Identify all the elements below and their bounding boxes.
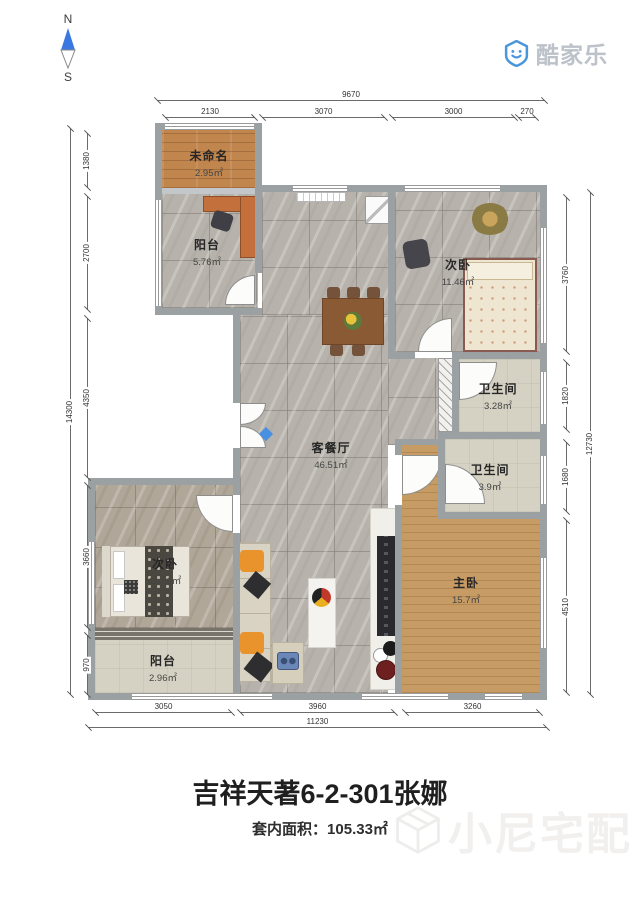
wall [438,432,547,439]
window [132,693,272,700]
dim-right-total: 12730 [590,192,591,695]
radiator [296,192,346,202]
window [540,558,547,648]
window [485,693,522,700]
bed-blanket [124,580,138,594]
wall [155,308,262,315]
dim-top-seg: 270 [518,117,536,118]
window [540,228,547,343]
armchair [402,238,431,270]
dim-top-seg: 3000 [392,117,515,118]
plan-area-total: 套内面积：105.33㎡ [0,818,640,839]
dining-chair [330,344,343,356]
room-label-balcony-top: 阳台5.76㎡ [193,236,221,268]
dim-left-seg: 4350 [87,318,88,478]
wall [438,439,445,519]
sofa-pillow-orange [240,550,264,572]
fruit-bowl-icon [312,588,331,607]
room-label-living-dining: 客餐厅46.51㎡ [311,439,350,471]
wall [233,478,240,495]
dim-top-seg: 2130 [165,117,255,118]
table-plant-icon [344,312,362,330]
dim-right-seg: 4510 [566,520,567,693]
wall [388,192,395,358]
wall [452,359,459,439]
dim-top-total: 9670 [157,100,545,101]
dim-left-seg: 970 [87,635,88,695]
pot-red [376,660,396,680]
wall-partition [162,188,258,194]
wall [395,445,402,455]
stereo [277,652,299,670]
dim-bottom-total: 11230 [88,727,547,728]
bed-pillows [467,262,533,280]
plant-icon [470,203,510,235]
window [540,456,547,504]
dim-top-seg: 3070 [262,117,385,118]
room-label-bedroom-right: 次卧11.46㎡ [442,256,475,288]
sliding-door-track [95,628,233,640]
compass-north-label: N [50,12,86,26]
room-label-balcony-bottom: 阳台2.96㎡ [149,652,177,684]
plan-title: 吉祥天著6-2-301张娜 [0,772,640,811]
wall [438,512,547,519]
compass: N S [50,12,86,84]
compass-arrow-icon [57,26,79,70]
wall [255,123,262,273]
window [362,693,448,700]
window [405,185,500,192]
sofa-pillow-orange [240,632,264,654]
brand-name: 酷家乐 [536,36,608,70]
wall [233,308,240,403]
window [540,372,547,424]
dim-left-seg: 1380 [87,133,88,188]
wall [88,478,240,485]
window [155,200,162,306]
bed-headboard [102,546,111,617]
kujiale-shield-icon [503,40,530,67]
room-floor-hallway [388,358,438,445]
room-label-bedroom-left: 次卧11.16㎡ [149,555,182,587]
dim-right-seg: 1820 [566,362,567,430]
room-floor-master-main [438,519,540,693]
dim-left-seg: 3660 [87,485,88,628]
dining-chair [352,344,365,356]
wall [388,352,415,359]
kitchen-appliance [377,536,396,636]
dim-right-seg: 1680 [566,442,567,512]
room-label-master: 主卧15.7㎡ [452,574,480,606]
window [165,123,254,130]
wall [395,505,402,700]
dim-bottom-seg: 3960 [240,712,395,713]
window [293,185,347,192]
compass-south-label: S [50,70,86,84]
pillow [113,551,125,579]
dim-left-seg: 2700 [87,196,88,310]
floorplan-page: N S 酷家乐 [0,0,640,905]
wall [233,533,240,700]
brand-logo: 酷家乐 [503,36,608,70]
dim-left-total: 14300 [70,128,71,695]
room-label-bathroom-2: 卫生间3.9㎡ [470,461,509,493]
dim-bottom-seg: 3050 [95,712,232,713]
dim-bottom-seg: 3260 [405,712,540,713]
room-label-unnamed: 未命名2.95㎡ [189,147,228,179]
room-label-bathroom-1: 卫生间3.28㎡ [478,380,517,412]
wall [452,352,547,359]
dim-right-seg: 3760 [566,197,567,352]
